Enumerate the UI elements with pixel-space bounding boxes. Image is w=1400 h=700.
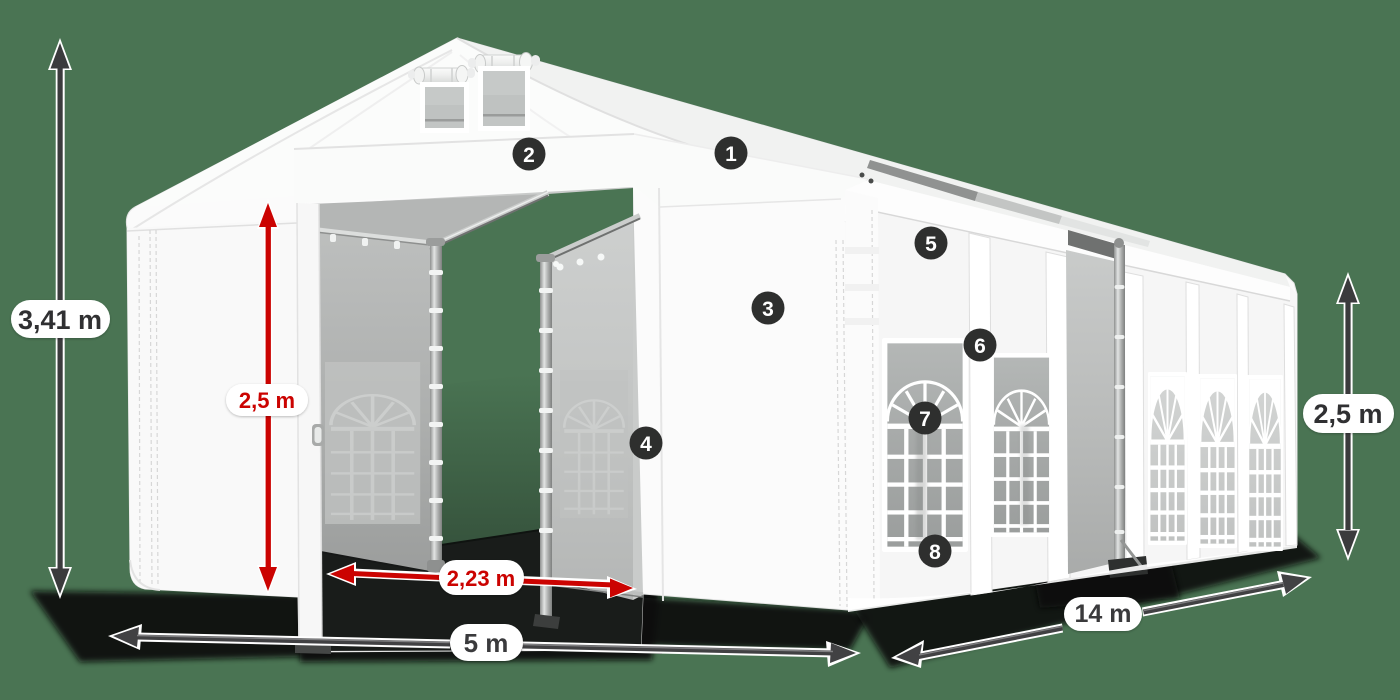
svg-text:6: 6 xyxy=(974,335,986,358)
svg-text:14 m: 14 m xyxy=(1075,600,1132,628)
svg-text:5: 5 xyxy=(925,233,937,256)
svg-text:5 m: 5 m xyxy=(464,628,509,658)
svg-text:4: 4 xyxy=(640,433,652,456)
svg-text:3,41 m: 3,41 m xyxy=(18,305,102,335)
svg-text:3: 3 xyxy=(762,298,774,321)
svg-text:2,5 m: 2,5 m xyxy=(1313,399,1382,429)
svg-text:1: 1 xyxy=(725,143,737,166)
svg-text:7: 7 xyxy=(919,408,931,431)
svg-text:2: 2 xyxy=(523,144,535,167)
svg-text:8: 8 xyxy=(929,541,941,564)
svg-text:2,23 m: 2,23 m xyxy=(447,566,516,591)
svg-text:2,5 m: 2,5 m xyxy=(239,388,295,413)
